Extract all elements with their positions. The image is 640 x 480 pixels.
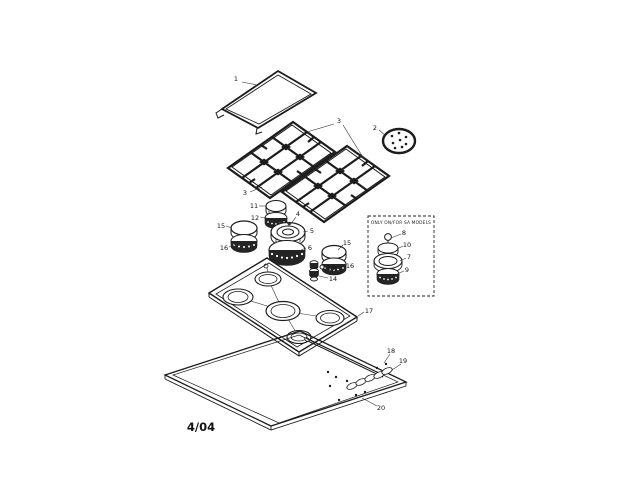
callout-small-burner-cap: 11 xyxy=(250,202,258,210)
callout-knob-slot: 19 xyxy=(399,357,407,365)
callout-igniter: 14 xyxy=(329,275,337,283)
callout-grates-top: 3 xyxy=(337,117,341,125)
center-burner-part xyxy=(269,223,305,266)
simmer-plate-part xyxy=(383,129,415,153)
left-side-burner-part xyxy=(231,221,257,253)
callout-center-burner-cap: 4 xyxy=(296,210,300,218)
callout-cover: 1 xyxy=(234,75,238,83)
callout-right-burner-cap: 15 xyxy=(343,239,351,247)
glass-cover-part xyxy=(216,71,316,134)
inset-box: ONLY ON/FOR SA MODELS 8 10 7 9 xyxy=(368,216,434,296)
inset-burner-stack xyxy=(374,234,402,285)
date-code: 4/04 xyxy=(187,420,215,434)
callout-igniter-washer: 13 xyxy=(327,264,335,272)
callout-right-burner-head: 16 xyxy=(346,262,354,270)
burner-openings xyxy=(223,272,344,344)
callout-small-burner-head: 12 xyxy=(251,214,259,222)
callout-inset-ball: 8 xyxy=(402,229,406,237)
callout-center-burner-head: 6 xyxy=(308,244,312,252)
callout-screw: 18 xyxy=(387,347,395,355)
callout-inset-head: 9 xyxy=(405,266,409,274)
callout-main-top: 17 xyxy=(365,307,373,315)
knob-slots xyxy=(346,366,393,390)
diagram-page: ONLY ON/FOR SA MODELS 8 10 7 9 xyxy=(0,0,640,480)
exploded-parts-diagram: ONLY ON/FOR SA MODELS 8 10 7 9 xyxy=(0,0,640,480)
callout-inset-cap: 10 xyxy=(403,241,411,249)
inset-caption: ONLY ON/FOR SA MODELS xyxy=(371,220,431,226)
callout-left-burner-head: 16 xyxy=(220,244,228,252)
callout-grates-left: 3 xyxy=(243,189,247,197)
igniter-washer xyxy=(320,265,324,269)
callout-burner-box: 20 xyxy=(377,404,385,412)
callout-center-burner-ring: 5 xyxy=(310,227,314,235)
callout-left-burner-cap: 15 xyxy=(217,222,225,230)
callout-simmer-plate: 2 xyxy=(373,124,377,132)
callout-inset-ring: 7 xyxy=(407,253,411,261)
burner-box-part xyxy=(165,331,406,430)
